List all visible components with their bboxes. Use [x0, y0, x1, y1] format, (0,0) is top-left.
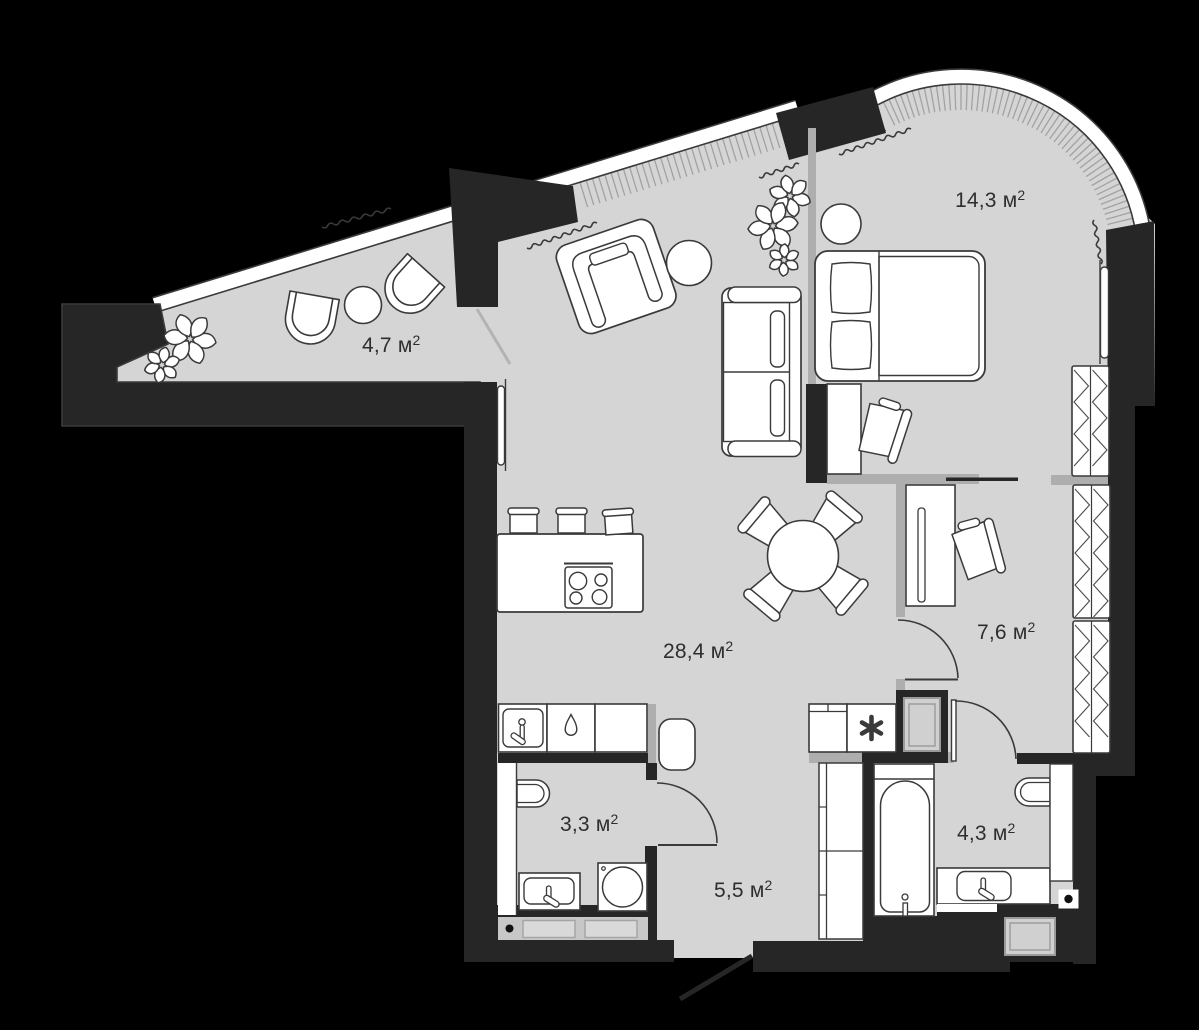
svg-text:7,6 м2: 7,6 м2: [977, 619, 1035, 644]
svg-text:4,3 м2: 4,3 м2: [957, 820, 1015, 845]
svg-text:3,3 м2: 3,3 м2: [560, 811, 618, 836]
svg-text:5,5 м2: 5,5 м2: [714, 877, 772, 902]
svg-text:4,7 м2: 4,7 м2: [362, 332, 420, 357]
svg-text:28,4 м2: 28,4 м2: [663, 638, 733, 663]
svg-text:14,3 м2: 14,3 м2: [955, 187, 1025, 212]
